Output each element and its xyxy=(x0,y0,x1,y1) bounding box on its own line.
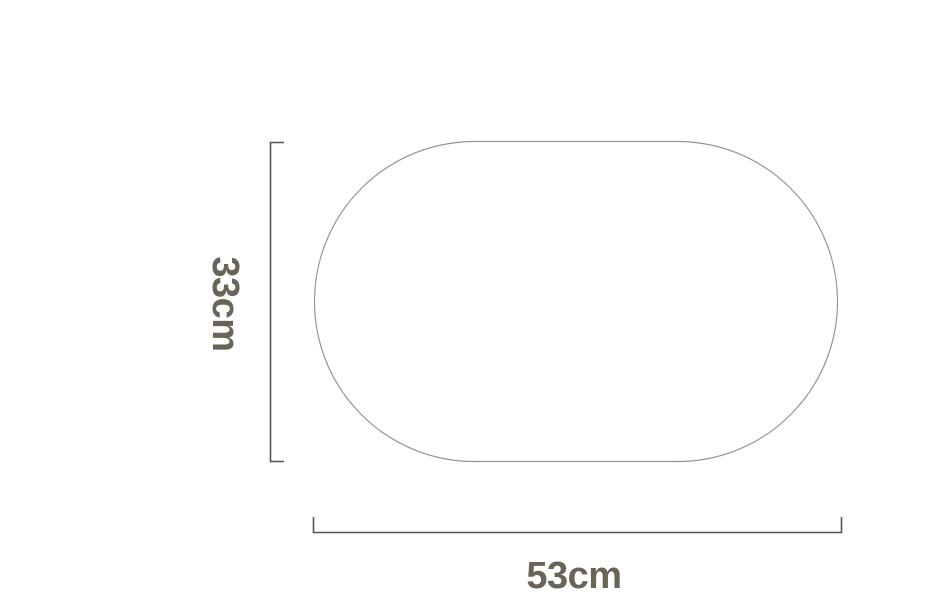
width-dimension-label: 53cm xyxy=(526,557,621,595)
oval-shape-outline xyxy=(315,142,838,462)
height-dimension-line xyxy=(271,143,285,462)
dimension-diagram: 33cm 53cm xyxy=(0,0,944,615)
diagram-canvas xyxy=(0,0,944,615)
width-dimension-line xyxy=(314,517,842,533)
height-dimension-label: 33cm xyxy=(206,256,244,351)
